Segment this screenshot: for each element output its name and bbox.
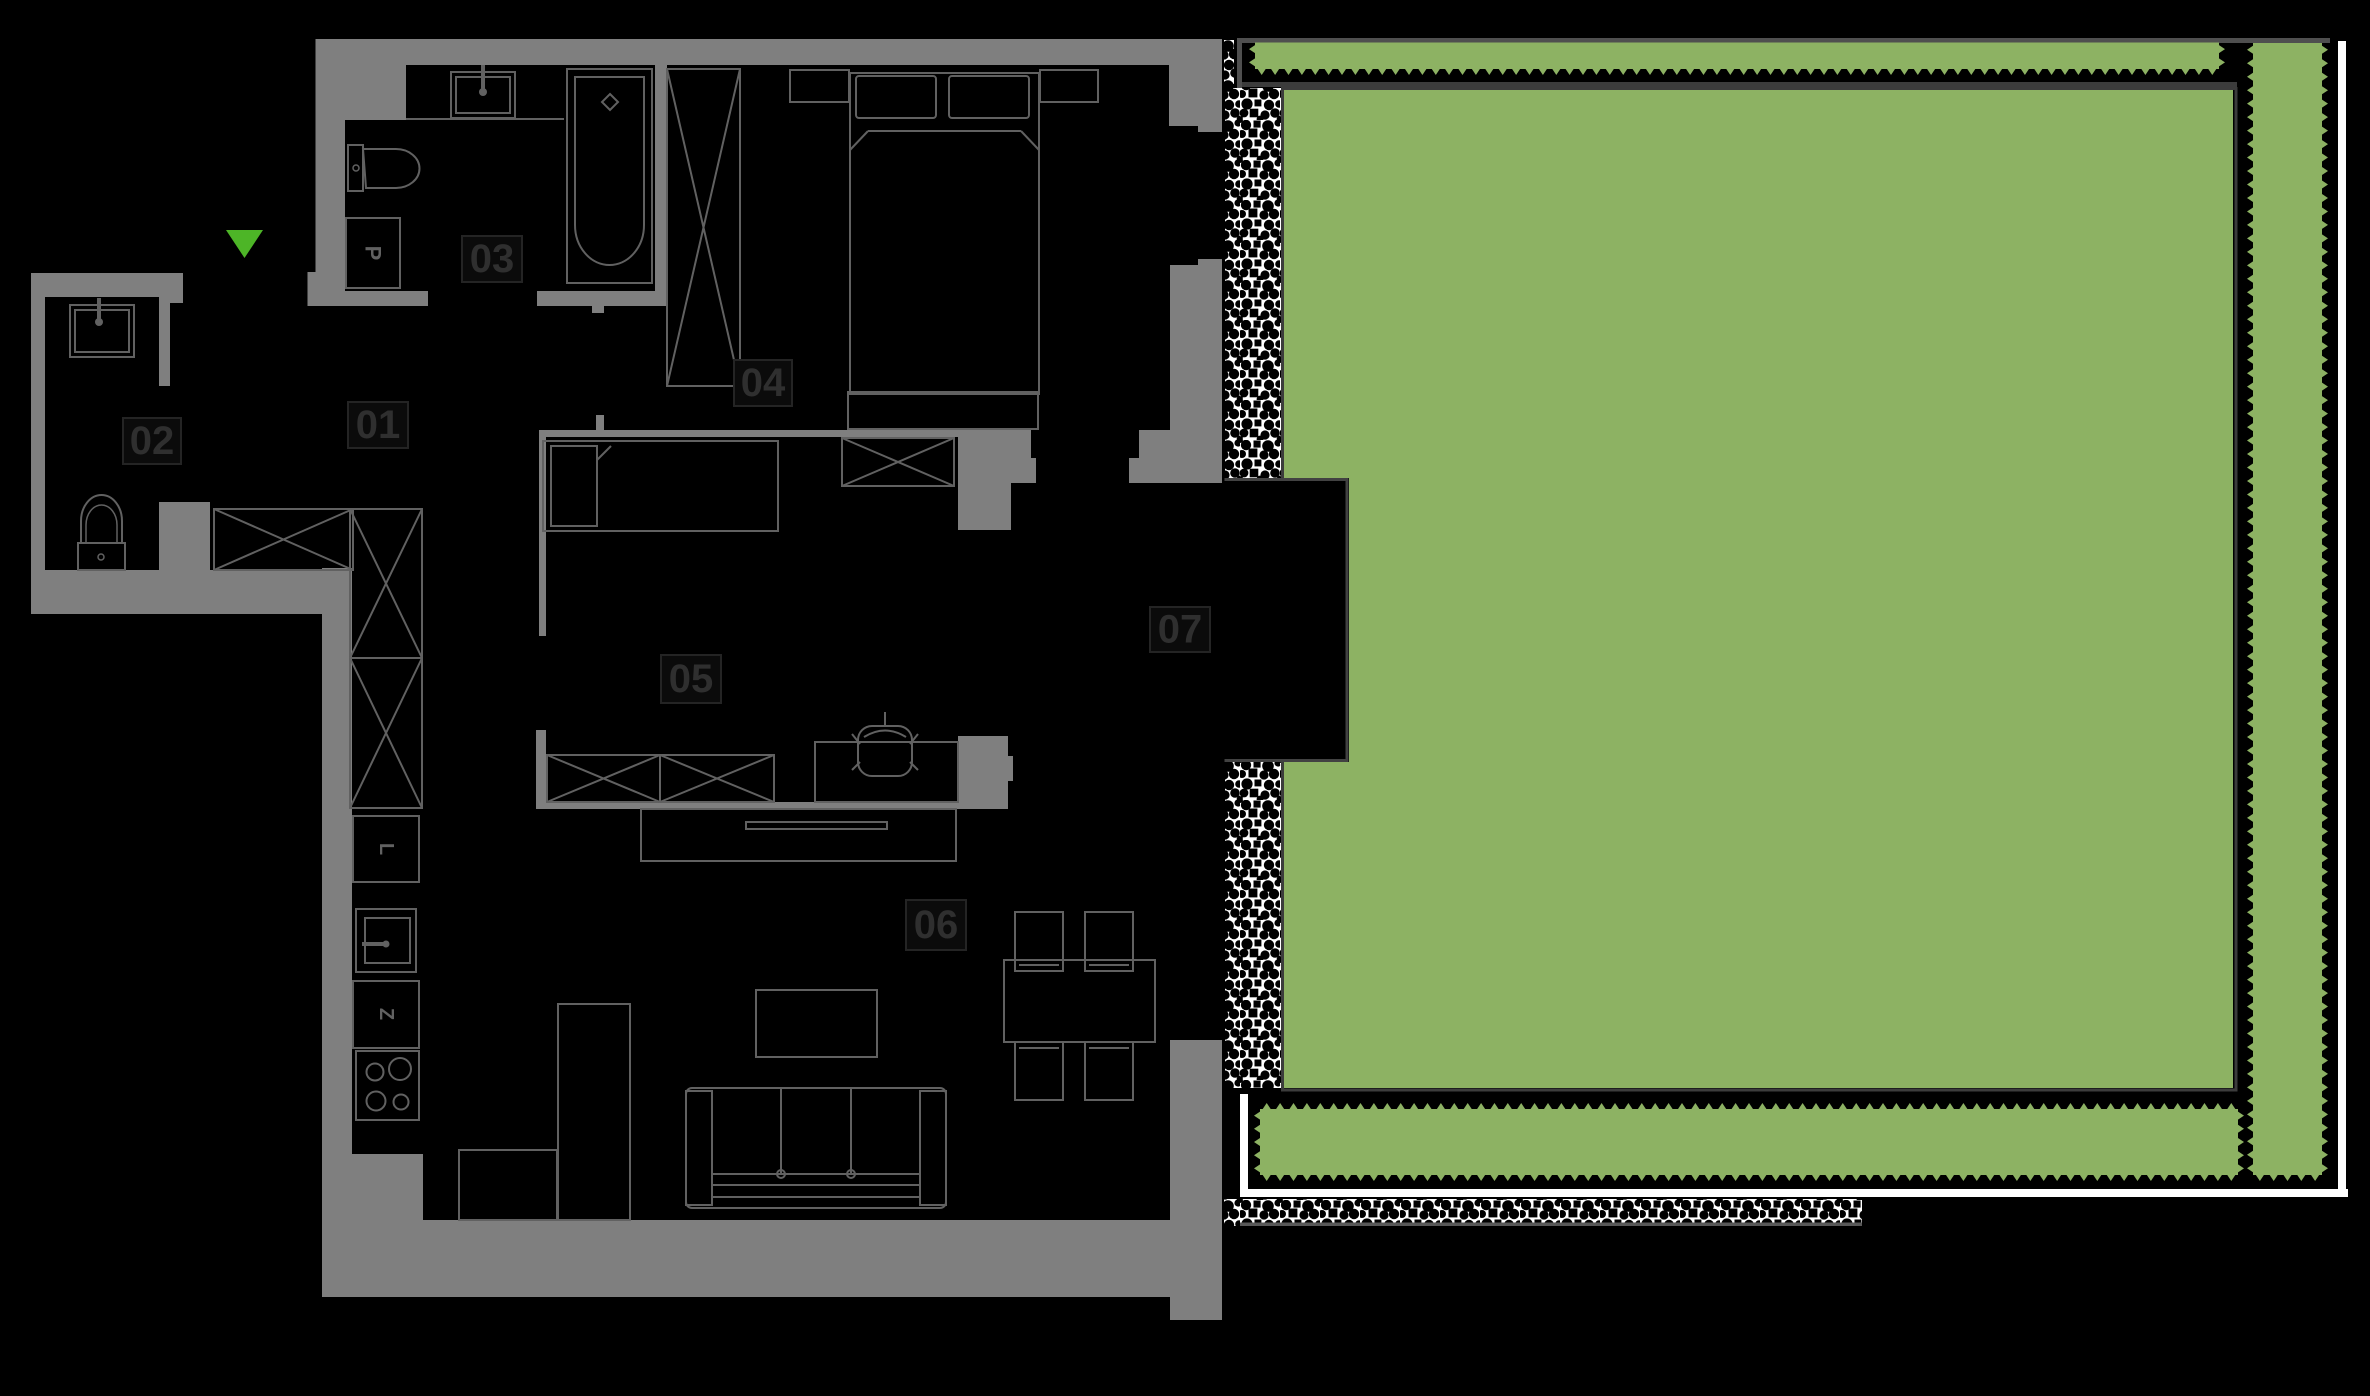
svg-text:01: 01 [356,403,401,447]
svg-text:P: P [361,246,386,261]
svg-text:05: 05 [669,657,714,701]
svg-text:L: L [375,843,397,855]
svg-text:02: 02 [130,419,175,463]
svg-text:07: 07 [1158,608,1203,652]
svg-text:Z: Z [375,1008,397,1020]
svg-text:03: 03 [470,237,515,281]
svg-text:06: 06 [914,903,959,947]
svg-text:04: 04 [741,361,786,405]
